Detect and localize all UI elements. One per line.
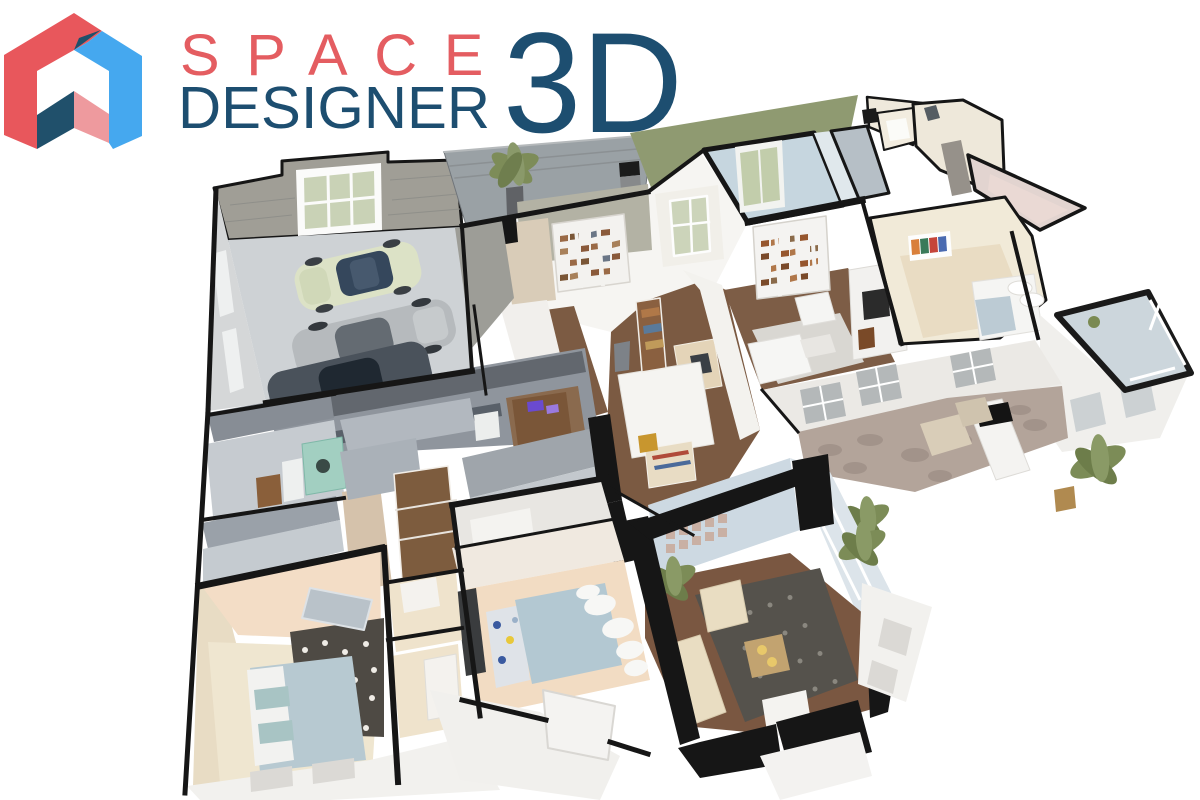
svg-text:DESIGNER: DESIGNER <box>178 74 490 141</box>
svg-text:3D: 3D <box>503 4 683 163</box>
